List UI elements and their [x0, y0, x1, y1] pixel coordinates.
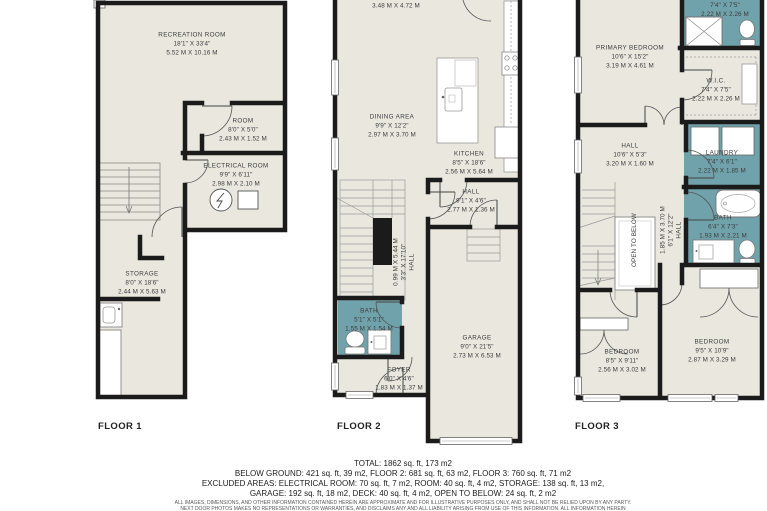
floor-3-tag: FLOOR 3 — [575, 421, 619, 432]
floor-2-tag: FLOOR 2 — [337, 421, 381, 432]
floor-2-plan — [328, 0, 528, 450]
room-label-hall-f3: HALL 10'6" X 5'3" 3.20 M X 1.60 M — [606, 141, 654, 168]
floor-1-plan — [88, 0, 293, 410]
room-label-foyer: FOYER 6'0" X 4'6" 1.83 M X 1.37 M — [375, 365, 423, 392]
floor-1-tag: FLOOR 1 — [98, 421, 142, 432]
disclaimer: ALL IMAGES, DIMENSIONS, AND OTHER INFORM… — [103, 501, 703, 511]
room-label-laundry: LAUNDRY 7'4" X 6'1" 2.22 M X 1.85 M — [698, 148, 746, 175]
closet-right-bedroom — [700, 269, 758, 288]
toilet — [739, 240, 755, 258]
summary-excluded-2: GARAGE: 192 sq. ft, 18 m2, DECK: 40 sq. … — [103, 489, 703, 499]
room-label-kitchen: KITCHEN 8'5" X 18'6" 2.56 M X 5.64 M — [445, 149, 493, 176]
room-label-bath-f2: BATH 5'1" X 5'1" 1.55 M X 1.54 M — [345, 306, 393, 333]
room-label-recreation: RECREATION ROOM 18'1" X 33'4" 5.52 M X 1… — [158, 30, 225, 57]
room-label-bedroom-right: BEDROOM 9'5" X 10'9" 2.87 M X 3.29 M — [688, 337, 736, 364]
disclaimer-line-2: NEXT DOOR PHOTOS MAKES NO REPRESENTATION… — [103, 507, 703, 511]
room-label-top-bath: 7'4" X 7'5" 2.22 M X 2.26 M — [701, 1, 749, 19]
room-dim-metric: 5.52 M X 10.16 M — [158, 49, 225, 58]
room-label-room: ROOM 8'0" X 5'0" 2.43 M X 1.52 M — [219, 116, 267, 143]
room-label-hall2-f2: 0.99 M X 5.44 M 3'3" X 17'10" HALL — [393, 238, 418, 286]
open-to-below-label: OPEN TO BELOW — [631, 213, 639, 267]
shelving-unit — [99, 330, 121, 396]
room-name: RECREATION ROOM — [158, 30, 225, 39]
electrical-panel-icon — [210, 189, 232, 211]
fridge — [495, 127, 520, 158]
room-label-bath-f3: BATH 6'4" X 7'3" 1.93 M X 2.21 M — [699, 213, 747, 240]
room-label-wic: W.I.C. 7'4" X 7'5" 2.22 M X 2.26 M — [692, 76, 740, 103]
island-sink — [445, 88, 462, 111]
room-label-dining: DINING AREA 9'9" X 12'2" 2.97 M X 3.70 M — [368, 112, 416, 139]
room-label-storage: STORAGE 8'0" X 18'6" 2.44 M X 5.63 M — [118, 269, 166, 296]
summary-excluded-1: EXCLUDED AREAS: ELECTRICAL ROOM: 70 sq. … — [103, 479, 703, 489]
summary-floors: BELOW GROUND: 421 sq. ft, 39 m2, FLOOR 2… — [103, 469, 703, 479]
room-label-hall2-f3: 1.85 M X 3.70 M 6'1" X 12'2" HALL — [660, 206, 685, 254]
room-label-primary-bedroom: PRIMARY BEDROOM 10'6" X 15'2" 3.19 M X 4… — [596, 43, 664, 70]
summary-total: TOTAL: 1862 sq. ft, 173 m2 — [103, 459, 703, 469]
closet-left-bedroom — [580, 318, 628, 330]
equipment-box — [238, 191, 258, 209]
room-label-hall-f2: HALL 9'1" X 4'6" 2.77 M X 1.36 M — [447, 187, 495, 214]
floor3-top-bath-fixtures — [686, 17, 755, 46]
area-summary: TOTAL: 1862 sq. ft, 173 m2 BELOW GROUND:… — [103, 459, 703, 511]
room-label-electrical: ELECTRICAL ROOM 9'9" X 6'11" 2.98 M X 2.… — [203, 161, 268, 188]
stove — [502, 52, 519, 75]
room-dim-imperial: 18'1" X 33'4" — [158, 39, 225, 48]
floorplan-page: RECREATION ROOM 18'1" X 33'4" 5.52 M X 1… — [0, 0, 767, 511]
room-label-garage: GARAGE 9'0" X 21'5" 2.73 M X 6.53 M — [453, 333, 501, 360]
room-label-partial-top: 3.48 M X 4.72 M — [372, 1, 420, 10]
room-label-bedroom-left: BEDROOM 8'5" X 9'11" 2.56 M X 3.02 M — [598, 347, 646, 374]
toilet — [740, 20, 755, 38]
closet-organizer — [742, 64, 757, 104]
